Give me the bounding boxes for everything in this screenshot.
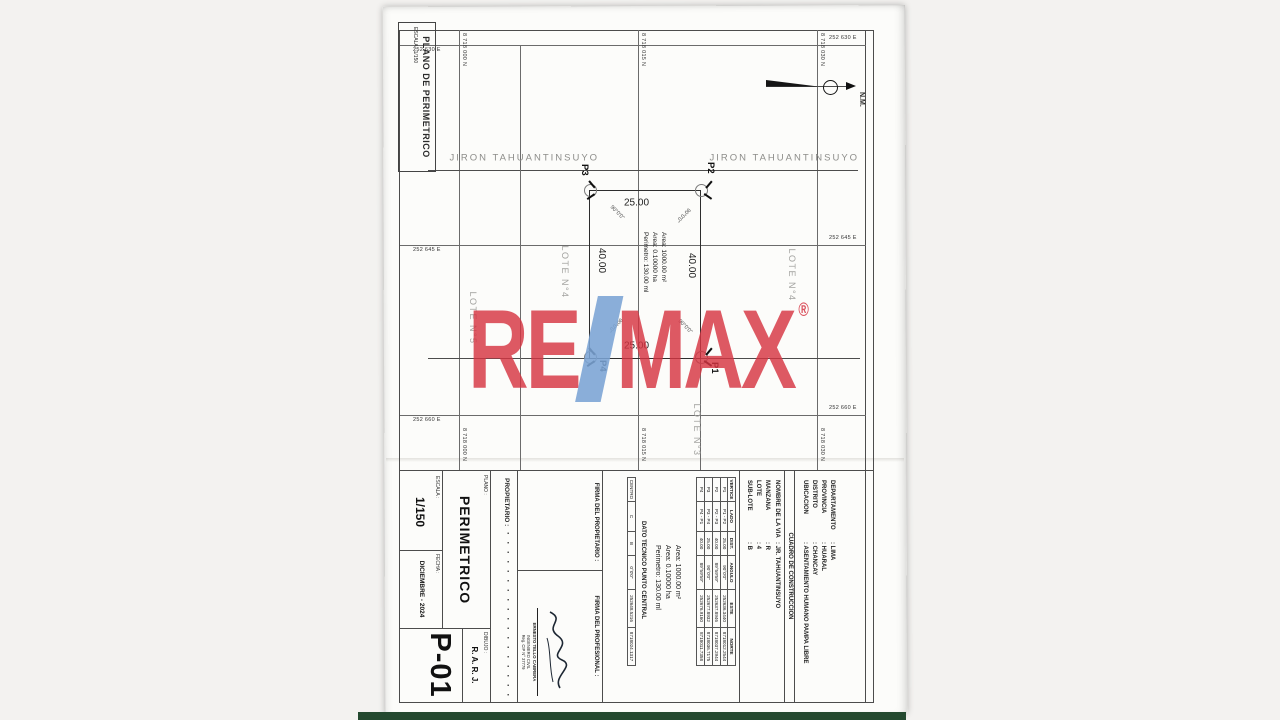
cell: 252676.9160 [697,590,705,628]
lot-boundary-line [520,45,521,470]
table-row: CENTROCB0°0'0''252648.52168718024.1317 [628,478,636,666]
photo-bottom-strip [358,712,906,720]
area-line: Perimetro: 130.00 ml [652,545,662,610]
lot-label: LOTE N°5 [468,278,478,358]
info-label: PROVINCIA [819,480,826,542]
cell: 25.00 [705,532,713,556]
grid-label: 8 718 015 N [640,33,646,66]
cell: 252637.8946 [712,590,720,628]
vertex-label: P3 [579,164,590,176]
info-label: SUB-LOTE [745,480,752,542]
owner-signature-label: FIRMA DEL PROPIETARIO : [593,476,599,568]
cell: 252648.5216 [628,590,636,628]
stamp-name: ERNESTO TELLO CABRERA [532,608,538,696]
grid-label: 252 645 E [413,247,453,253]
plan-sheet: 252 630 E 252 630 E 252 645 E 252 645 E … [388,10,898,712]
grid-label: 252 645 E [829,235,869,241]
scanned-photo-background: 252 630 E 252 630 E 252 645 E 252 645 E … [0,0,1280,720]
cell: 89°59'59'' [697,556,705,590]
vertex-label: P1 [709,362,720,374]
plan-title: PLANO DE PERIMETRICO [421,23,431,171]
dimension-label: 25.00 [620,198,654,209]
cell: 8718037.2944 [712,628,720,666]
grid-east-line [400,45,866,46]
central-point-title: DATO TECNICO PUNTO CENTRAL [640,510,646,630]
col-header: ANGULO [728,556,736,590]
lot-label: LOTE N°3 [692,392,702,468]
info-value: : CHANCAY [810,542,817,575]
dimension-label: 40.00 [686,253,697,278]
cell: P2 - P3 [712,502,720,532]
owner-name-redacted: · · · · · · · · · · · · · · · · · · [503,532,513,698]
street-boundary-line [428,170,858,171]
street-name: JIRON TAHUANTINSUYO [710,153,838,164]
frame-line [865,30,866,702]
owner-label: PROPIETARIO : [503,478,510,526]
frame-line [399,30,874,31]
sheet-number: P-01 [423,628,456,702]
cell: 8718036.7175 [705,628,713,666]
cell: 90°0'0'' [720,556,728,590]
section-divider [518,570,603,571]
grid-label: 8 718 000 N [461,33,467,66]
info-value: : HUARAL [819,542,826,571]
frame-line [399,702,874,703]
construction-table-title: CUADRO DE CONSTRUCCION [787,476,793,676]
cell: P2 [712,478,720,502]
drawn-by: R. A. R. J. [470,630,479,700]
lot-label: LOTE N°4 [560,232,570,312]
col-header: LADO [728,502,736,532]
parcel-area-annotation: Area: 1000.00 m² Area: 0.10000 ha Perime… [641,232,668,292]
central-point-table: CENTROCB0°0'0''252648.52168718024.1317 [627,477,636,666]
cell: P3 [705,478,713,502]
professional-signature [544,608,568,692]
cell: 40.00 [712,532,720,556]
table-header-row: VERTICE LADO DIST. ANGULO ESTE NORTE [728,478,736,666]
cell: P1 [720,478,728,502]
area-line: Area: 0.10000 ha [650,232,659,292]
cell: 89°59'59'' [712,556,720,590]
cell: CENTRO [628,478,636,502]
cell: P3 - P4 [705,502,713,532]
cell: C [628,502,636,532]
section-divider [784,470,785,702]
grid-label: 8 718 030 N [819,428,825,461]
construction-table: VERTICE LADO DIST. ANGULO ESTE NORTE P1P… [696,477,736,666]
stamp-registration: Reg. CIP N° 37779 [521,608,527,696]
field-label: FECHA : [434,554,440,573]
cell: 8718012.2544 [720,628,728,666]
section-divider [442,470,443,628]
info-label: DEPARTAMENTO [828,480,835,542]
info-label: NOMBRE DE LA VIA [773,480,780,542]
area-line: Area: 1000.00 m² [659,232,668,292]
lot-label: LOTE N°4 [787,235,797,315]
info-value: : R [763,542,770,550]
cell: 0°0'0'' [628,556,636,590]
cell: 25.00 [720,532,728,556]
dimension-label: 25.00 [620,341,654,352]
section-divider [739,470,740,702]
scale-value: 1/150 [413,476,427,548]
info-label: LOTE [754,480,761,542]
section-divider [400,550,443,551]
cell: 90°0'0'' [705,556,713,590]
dimension-label: 40.00 [596,248,607,273]
grid-label: 8 718 000 N [461,428,467,461]
field-label: ESCALA : [434,476,440,498]
section-divider [517,470,518,702]
date-value: DICIEMBRE - 2024 [418,552,425,626]
col-header: ESTE [728,590,736,628]
vertex-label: P2 [705,162,716,174]
table-row: P2P2 - P340.0089°59'59''252637.894687180… [712,478,720,666]
section-divider [462,628,463,702]
info-value: : LIMA [828,542,835,560]
grid-label: 8 718 015 N [640,428,646,461]
plan-type: PERIMETRICO [457,475,473,625]
professional-stamp: ERNESTO TELLO CABRERA INGENIERO CIVIL Re… [521,608,569,696]
professional-signature-label: FIRMA DEL PROFESIONAL : [593,572,599,700]
cell: P4 - P1 [697,502,705,532]
section-divider [602,470,603,702]
grid-north-line [817,30,818,470]
cell: P1 - P2 [720,502,728,532]
info-value: : B [745,542,752,550]
titleblock-divider-line [399,470,874,471]
grid-label: 252 630 E [829,35,869,41]
info-value: : JR. TAHUANTINSUYO [773,542,780,608]
area-line: Area: 1000.00 m² [672,545,682,610]
table-row: P4P4 - P140.0089°59'59''252676.916087180… [697,478,705,666]
info-label: DISTRITO [810,480,817,542]
plan-scale: ESCALA : 1/150 [412,27,418,171]
cell: 252677.8932 [705,590,713,628]
vertex-label: P4 [597,360,608,372]
field-label: DIBUJO : [482,632,488,653]
col-header: DIST. [728,532,736,556]
grid-north-line [459,30,460,470]
grid-east-line [400,415,866,416]
corner-title-box: PLANO DE PERIMETRICO ESCALA : 1/150 [398,22,436,172]
area-line: Area: 0.10000 ha [662,545,672,610]
col-header: VERTICE [728,478,736,502]
info-value: : 4 [754,542,761,549]
cell: 8718024.1317 [628,628,636,666]
area-line: Perimetro: 130.00 ml [641,232,650,292]
grid-label: 252 660 E [829,405,869,411]
grid-label: 8 718 030 N [819,33,825,66]
area-summary-block: Area: 1000.00 m² Area: 0.10000 ha Perime… [652,545,682,610]
info-value: : ASENTAMIENTO HUMANO PAMPA LIBRE [801,542,808,672]
cell: P4 [697,478,705,502]
section-divider [794,470,795,702]
cell: B [628,532,636,556]
frame-line [873,30,874,702]
stamp-title: INGENIERO CIVIL [526,608,532,696]
street-name: JIRON TAHUANTINSUYO [450,153,578,164]
info-label: MANZANA [763,480,770,542]
grid-label: 252 660 E [413,417,453,423]
cell: 40.00 [697,532,705,556]
table-row: P3P3 - P425.0090°0'0''252677.89328718036… [705,478,713,666]
cell: 252636.3440 [720,590,728,628]
info-label: UBICACION [801,480,808,542]
table-row: P1P1 - P225.0090°0'0''252636.34408718012… [720,478,728,666]
cell: 8718011.7358 [697,628,705,666]
north-arrow-label: N.M. [858,92,865,107]
section-divider [490,470,491,702]
col-header: NORTE [728,628,736,666]
field-label: PLANO : [482,475,488,495]
